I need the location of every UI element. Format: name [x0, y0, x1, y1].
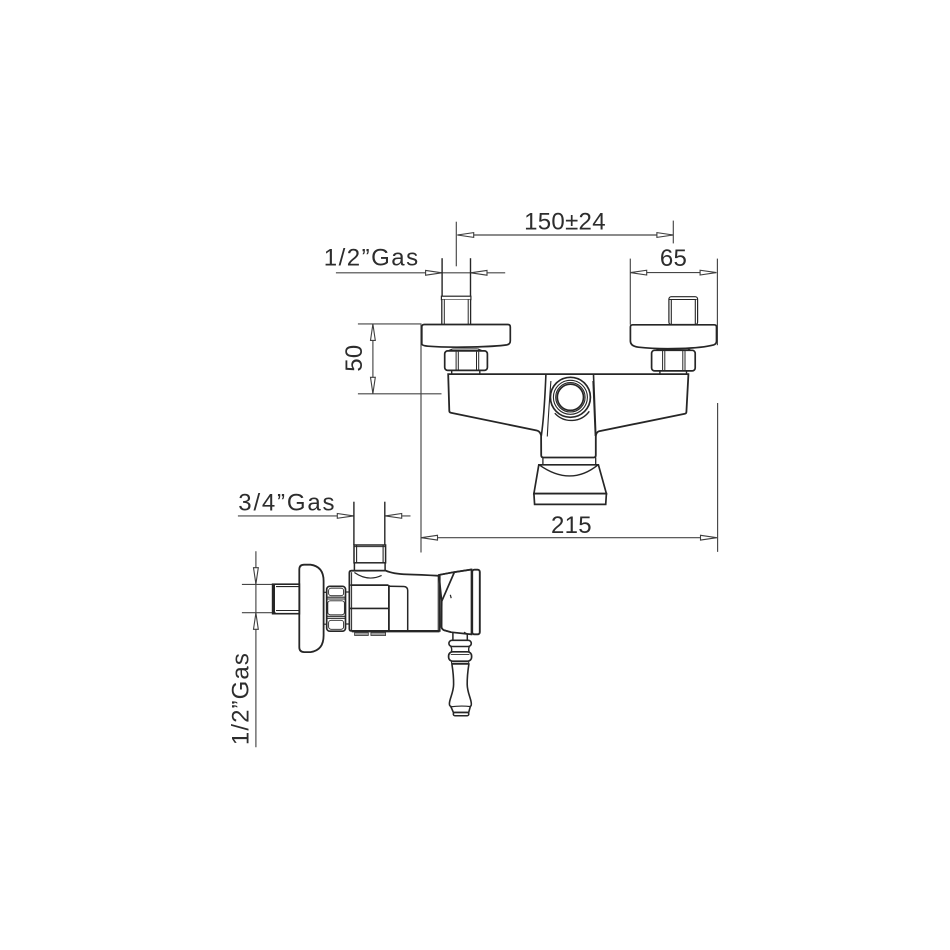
svg-text:150±24: 150±24 — [524, 209, 606, 236]
svg-text:215: 215 — [551, 512, 592, 539]
svg-text:3/4”Gas: 3/4”Gas — [238, 490, 336, 517]
svg-text:50: 50 — [341, 344, 368, 371]
svg-text:1/2”Gas: 1/2”Gas — [227, 652, 254, 745]
svg-text:1/2”Gas: 1/2”Gas — [324, 245, 420, 272]
svg-text:65: 65 — [660, 245, 687, 272]
